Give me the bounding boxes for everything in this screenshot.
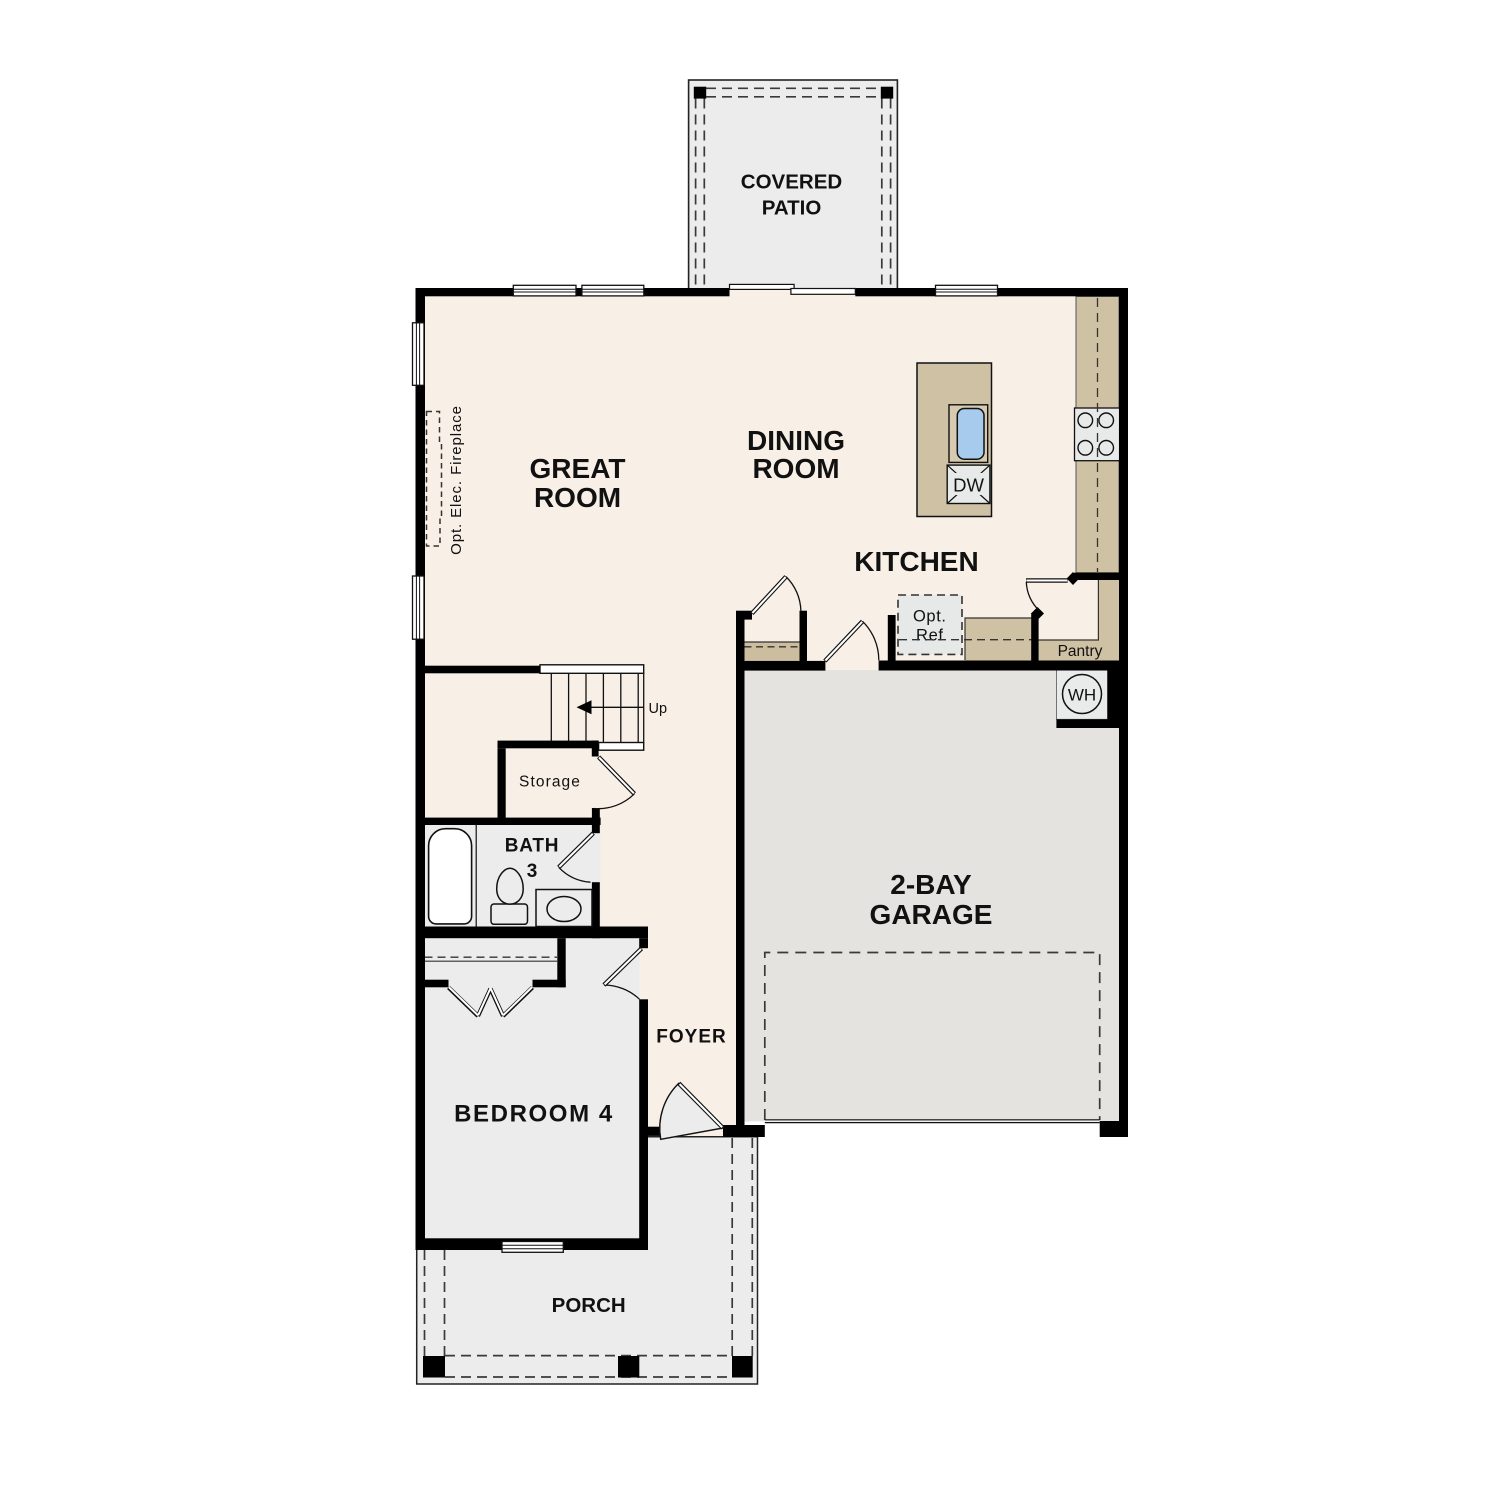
svg-text:ROOM: ROOM (534, 482, 621, 513)
svg-text:PATIO: PATIO (762, 197, 822, 220)
svg-text:Opt. Elec. Fireplace: Opt. Elec. Fireplace (448, 405, 465, 555)
svg-text:Ref: Ref (916, 627, 943, 645)
svg-text:BATH: BATH (505, 836, 560, 857)
svg-text:GARAGE: GARAGE (870, 899, 993, 930)
svg-text:FOYER: FOYER (656, 1027, 726, 1048)
svg-text:Up: Up (649, 701, 668, 717)
svg-text:WH: WH (1068, 685, 1096, 704)
svg-text:Opt.: Opt. (913, 608, 947, 626)
svg-text:ROOM: ROOM (752, 453, 839, 484)
svg-text:2-BAY: 2-BAY (890, 869, 972, 900)
svg-text:Storage: Storage (519, 774, 581, 791)
svg-text:GREAT: GREAT (530, 453, 626, 484)
svg-text:3: 3 (527, 861, 538, 882)
svg-text:COVERED: COVERED (741, 171, 842, 194)
svg-text:DW: DW (953, 475, 984, 496)
svg-text:KITCHEN: KITCHEN (854, 546, 978, 577)
svg-text:DINING: DINING (747, 425, 845, 456)
svg-text:Pantry: Pantry (1058, 643, 1103, 660)
svg-text:PORCH: PORCH (552, 1294, 626, 1317)
svg-text:BEDROOM 4: BEDROOM 4 (454, 1101, 614, 1128)
